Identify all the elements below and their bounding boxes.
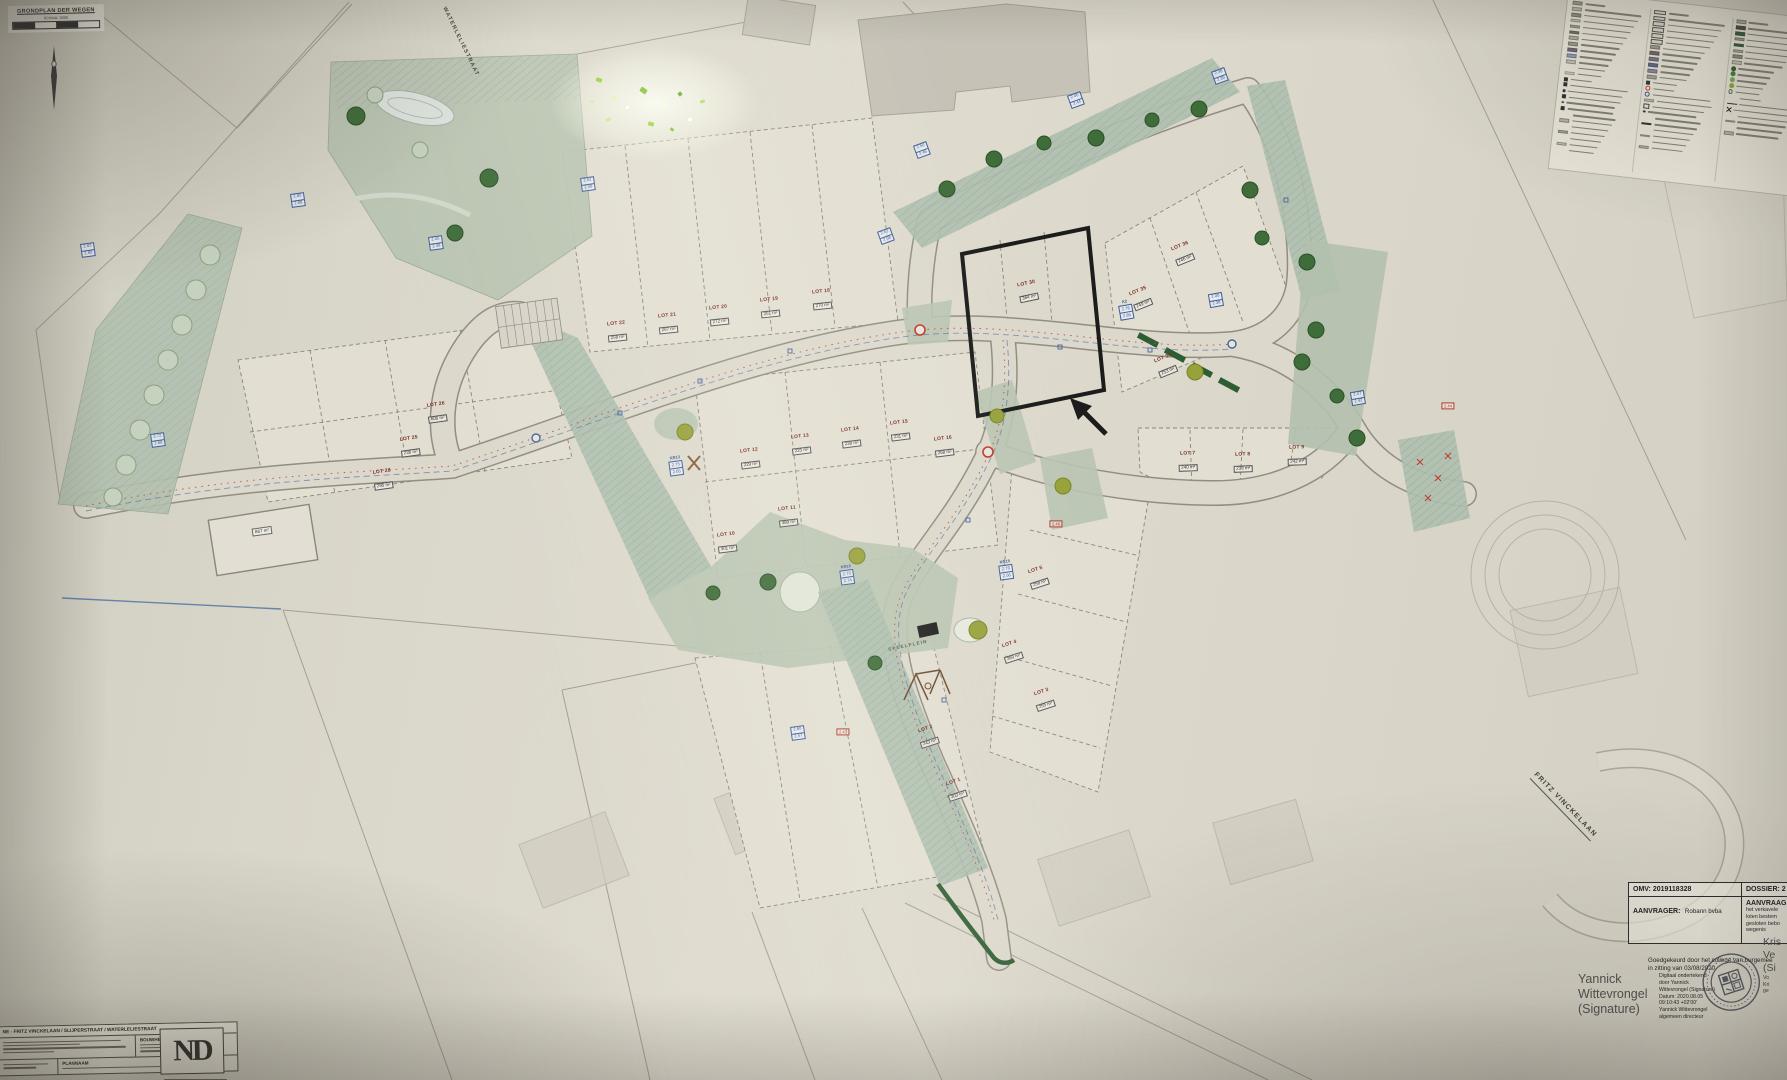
- aanvraag-description: het verkaveleloten bestemgesloten bebowe…: [1746, 907, 1787, 934]
- red-level-label: 2.46: [1049, 520, 1062, 527]
- aanvrager-label: AANVRAGER:: [1633, 908, 1680, 915]
- legend-swatch: [1563, 82, 1567, 86]
- lot-label: LOT 2243 m²: [916, 724, 941, 750]
- plan-labels-layer: LOT 18270 m²LOT 19261 m²LOT 20272 m²LOT …: [0, 0, 1787, 1080]
- lot-label: LOT 18270 m²: [811, 289, 832, 312]
- street-name-label: FRITZ VINCKELAAN: [1530, 771, 1598, 841]
- lot-label: LOT 3255 m²: [1032, 687, 1057, 713]
- lot-label: LOT 11389 m²: [777, 505, 798, 528]
- legend-swatch: [1727, 102, 1737, 105]
- dossier-number: DOSSIER: 2: [1741, 883, 1787, 896]
- lot-label: LOT 14228 m²: [840, 426, 861, 449]
- lot-label: LOT 21267 m²: [657, 313, 678, 336]
- legend-swatch: [1729, 83, 1735, 89]
- aanvrager-value: Robann bvba: [1685, 908, 1722, 915]
- lot-label: LOT 26606 m²: [426, 401, 448, 424]
- elevation-label: KR162.702.74: [839, 564, 856, 586]
- lot-label: LOT 9242 m²: [1287, 445, 1307, 467]
- elevation-label: 2.462.44: [1067, 90, 1086, 110]
- elevation-label: 2.302.38: [1208, 291, 1225, 309]
- plan-title-box: GRONDPLAN DER WEGEN SCHAAL 1/500: [8, 4, 105, 33]
- legend-swatch: [1643, 103, 1650, 109]
- legend-column: [1554, 0, 1648, 172]
- project-info-cell: [0, 1035, 135, 1059]
- scale-bar: [12, 20, 100, 30]
- legend-swatch: [1562, 89, 1565, 92]
- lot-label: LOT 28295 m²: [372, 468, 394, 491]
- red-level-label: 2.44: [1441, 402, 1454, 409]
- legend-panel: [1548, 0, 1787, 197]
- signature-name: Yannick Wittevrongel (Signature): [1578, 972, 1647, 1016]
- photographed-site-plan: LOT 18270 m²LOT 19261 m²LOT 20272 m²LOT …: [0, 0, 1787, 1080]
- plan-meta-cell: [0, 1059, 58, 1076]
- legend-swatch: [1560, 106, 1564, 110]
- elevation-label: 2.502.46: [913, 140, 932, 160]
- lot-label: LOT 12229 m²: [739, 447, 760, 470]
- parcel-area-label: 867 m²: [252, 526, 273, 536]
- lot-label: LOT 5258 m²: [1026, 565, 1051, 591]
- lot-label: LOT 34253 m²: [1153, 353, 1178, 380]
- lot-label: LOT 30364 m²: [1017, 280, 1040, 304]
- lot-label: LOT 10301 m²: [716, 531, 737, 554]
- legend-column: [1632, 8, 1729, 181]
- red-level-label: 2.43: [836, 728, 849, 735]
- elevation-label: 2.832.80: [80, 241, 96, 259]
- elevation-label: 2.622.58: [877, 226, 896, 246]
- legend-swatch: [1731, 66, 1737, 72]
- legend-swatch: [1645, 91, 1651, 97]
- elevation-label: 2.382.35: [1211, 66, 1230, 86]
- lot-label: LOT 15231 m²: [889, 419, 910, 442]
- lot-label: LOT 4260 m²: [1000, 639, 1025, 665]
- legend-swatch: [1728, 89, 1733, 94]
- elevation-label: 2.722.68: [150, 431, 166, 449]
- legend-swatch: [1726, 106, 1732, 112]
- legend-swatch: [1725, 120, 1735, 123]
- legend-swatch: [1639, 145, 1649, 150]
- elevation-label: 2.472.42: [1350, 389, 1367, 407]
- lot-label: LOT 22258 m²: [606, 321, 627, 344]
- legend-swatch: [1643, 110, 1646, 113]
- elevation-label: KR152.762.56: [998, 559, 1015, 581]
- elevation-label: 2.522.49: [580, 175, 596, 193]
- legend-swatch: [1646, 80, 1650, 84]
- plan-title: GRONDPLAN DER WEGEN: [12, 7, 100, 15]
- second-signature-cut: KrisVe(SiVoKrige: [1763, 936, 1787, 995]
- legend-swatch: [1642, 122, 1652, 125]
- aanvrager-cell: AANVRAGER: Robann bvba: [1629, 897, 1741, 943]
- elevation-label: 2.452.48: [428, 234, 444, 252]
- lot-label: LOT 8238 m²: [1233, 452, 1253, 474]
- lot-label: LOT 1303 m²: [944, 777, 969, 803]
- lot-label: LOT 36246 m²: [1170, 241, 1195, 268]
- nd-logo: ND: [173, 1036, 211, 1067]
- legend-swatch: [1723, 131, 1733, 136]
- omv-number: OMV: 2019118328: [1629, 883, 1741, 896]
- lot-label: LOT 25236 m²: [399, 435, 421, 458]
- surveyor-logo-box: ND: [160, 1027, 225, 1074]
- lot-label: LOT 13225 m²: [790, 433, 811, 456]
- legend-swatch: [1645, 85, 1651, 91]
- street-name-label: SPEELPLEIN: [888, 640, 928, 653]
- legend-swatch: [1640, 134, 1650, 137]
- lot-label: LOT 19261 m²: [759, 297, 780, 320]
- legend-swatch: [1562, 94, 1566, 98]
- approval-table: OMV: 2019118328 DOSSIER: 2 AANVRAGER: Ro…: [1628, 882, 1787, 944]
- elevation-label: 2.602.57: [790, 724, 806, 742]
- elevation-label: 2.852.88: [290, 191, 306, 209]
- legend-swatch: [1561, 101, 1564, 104]
- aanvraag-label: AANVRAAG:: [1746, 900, 1787, 907]
- lot-label: LOT 16268 m²: [933, 435, 954, 458]
- lot-label: LOT 7240 m²: [1178, 451, 1198, 473]
- legend-swatch: [1564, 77, 1568, 81]
- legend-swatch: [1556, 147, 1566, 152]
- lot-label: LOT 20272 m²: [708, 305, 729, 328]
- street-name-label: WATERLELIESTRAAT: [441, 7, 479, 78]
- elevation-label: KR132.752.65: [668, 455, 685, 477]
